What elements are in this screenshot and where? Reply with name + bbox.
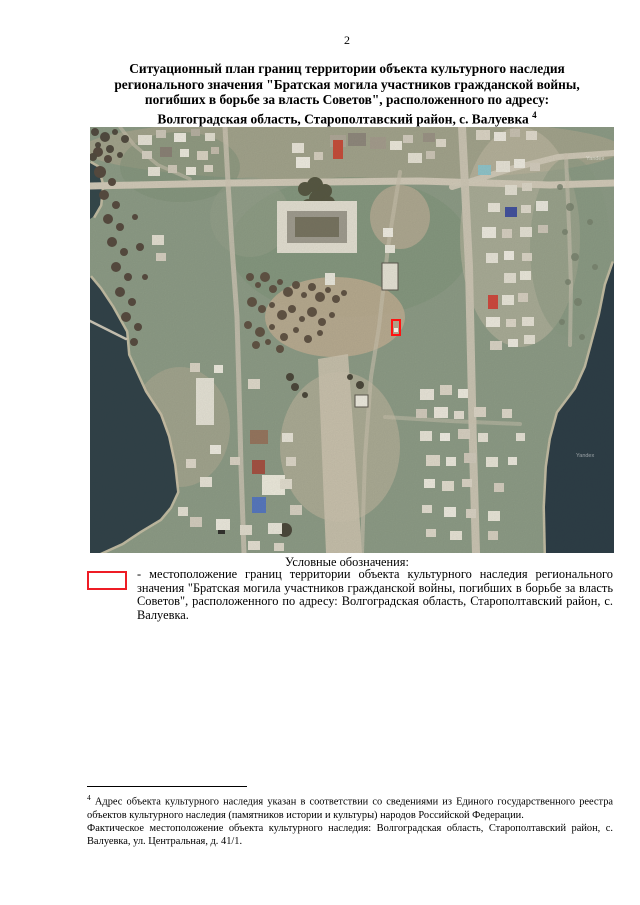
situational-plan-map: YandexYandex <box>90 127 614 553</box>
map-grain-overlay <box>90 127 614 553</box>
title-footnote-ref: 4 <box>532 110 537 120</box>
title-line-3: погибших в борьбе за власть Советов", ра… <box>54 92 640 108</box>
document-title: Ситуационный план границ территории объе… <box>54 61 640 127</box>
footnote-paragraph-2: Фактическое местоположение объекта культ… <box>87 822 613 848</box>
footnote-divider <box>87 786 247 787</box>
footnote: 4 Адрес объекта культурного наследия ука… <box>87 791 613 848</box>
title-line-2: регионального значения "Братская могила … <box>54 77 640 93</box>
title-line-1: Ситуационный план границ территории объе… <box>54 61 640 77</box>
footnote-marker: 4 <box>87 793 91 802</box>
svg-text:Yandex: Yandex <box>576 453 594 459</box>
satellite-map-svg: YandexYandex <box>90 127 614 553</box>
legend-symbol-swatch <box>87 571 127 590</box>
title-line-4: Волгоградская область, Старополтавский р… <box>54 108 640 127</box>
svg-text:Yandex: Yandex <box>586 156 604 162</box>
page-number: 2 <box>54 33 640 48</box>
footnote-paragraph-1: 4 Адрес объекта культурного наследия ука… <box>87 791 613 822</box>
legend-description: - местоположение границ территории объек… <box>137 568 613 622</box>
